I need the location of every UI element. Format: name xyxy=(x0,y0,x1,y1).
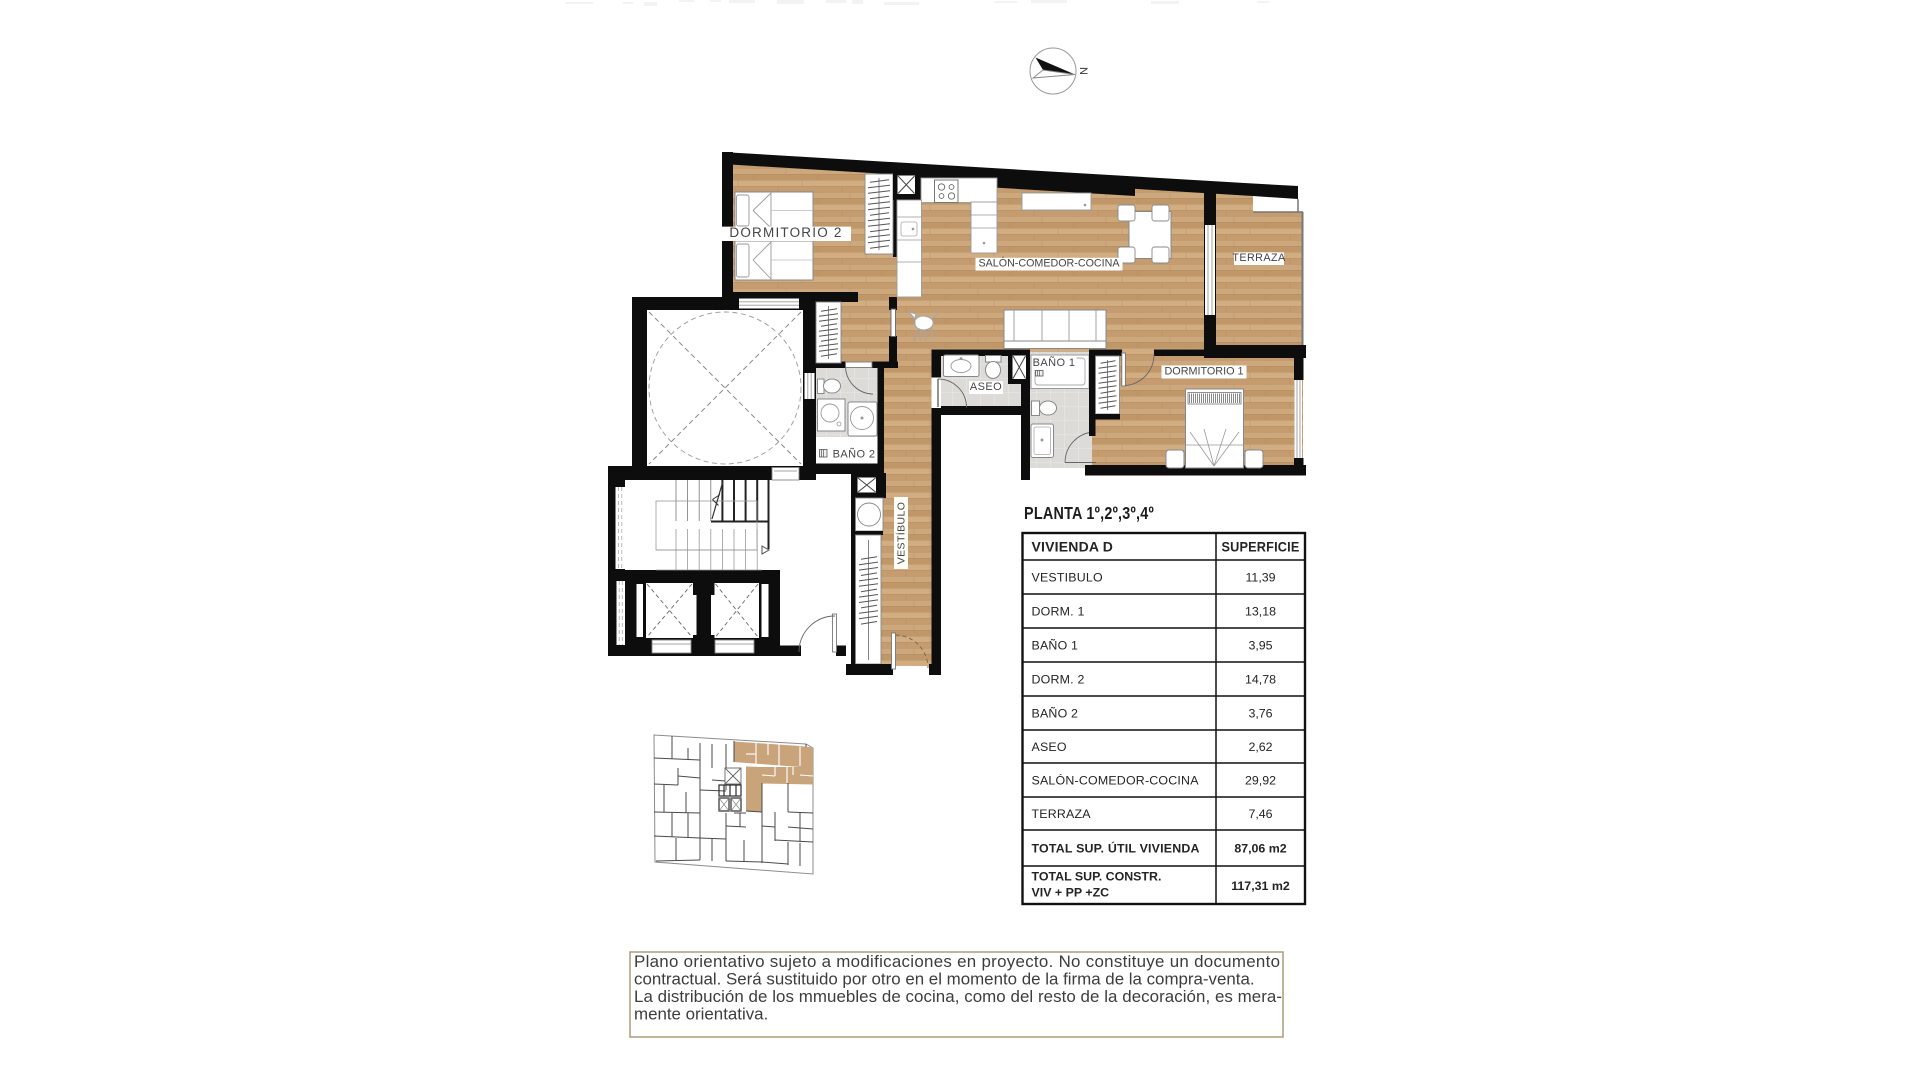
svg-text:3,76: 3,76 xyxy=(1248,707,1272,721)
svg-text:3,95: 3,95 xyxy=(1248,639,1272,653)
svg-text:DORM. 2: DORM. 2 xyxy=(1032,673,1085,687)
svg-text:DORMITORIO 1: DORMITORIO 1 xyxy=(1165,366,1244,378)
svg-text:La distribución de los mmueble: La distribución de los mmuebles de cocin… xyxy=(634,987,1282,1006)
svg-text:TERRAZA: TERRAZA xyxy=(1232,252,1286,264)
svg-text:11,39: 11,39 xyxy=(1245,571,1275,585)
svg-text:BAÑO 2: BAÑO 2 xyxy=(833,448,876,461)
svg-text:VIVIENDA D: VIVIENDA D xyxy=(1032,539,1114,555)
svg-text:TERRAZA: TERRAZA xyxy=(1032,807,1092,821)
svg-text:DORMITORIO 2: DORMITORIO 2 xyxy=(729,225,842,240)
svg-text:BAÑO 1: BAÑO 1 xyxy=(1032,639,1079,653)
svg-text:contractual. Será sustituido p: contractual. Será sustituido por otro en… xyxy=(634,970,1255,989)
svg-text:DORM. 1: DORM. 1 xyxy=(1032,605,1085,619)
svg-text:Plano orientativo sujeto a mod: Plano orientativo sujeto a modificacione… xyxy=(634,952,1280,971)
svg-text:N: N xyxy=(1077,67,1089,75)
svg-text:SALÓN-COMEDOR-COCINA: SALÓN-COMEDOR-COCINA xyxy=(1032,773,1200,788)
svg-text:TOTAL SUP. CONSTR.: TOTAL SUP. CONSTR. xyxy=(1032,870,1162,884)
svg-text:SUPERFICIE: SUPERFICIE xyxy=(1222,539,1300,555)
svg-text:ASEO: ASEO xyxy=(970,381,1002,393)
svg-text:13,18: 13,18 xyxy=(1245,605,1276,619)
svg-text:VIV + PP +ZC: VIV + PP +ZC xyxy=(1032,886,1110,900)
svg-text:BAÑO 2: BAÑO 2 xyxy=(1032,707,1079,721)
svg-text:7,46: 7,46 xyxy=(1248,807,1272,821)
svg-text:14,78: 14,78 xyxy=(1245,673,1276,687)
svg-text:SALÓN-COMEDOR-COCINA: SALÓN-COMEDOR-COCINA xyxy=(979,257,1121,270)
svg-text:mente orientativa.: mente orientativa. xyxy=(634,1005,768,1024)
svg-text:29,92: 29,92 xyxy=(1245,774,1276,788)
svg-text:ASEO: ASEO xyxy=(1032,740,1067,754)
svg-text:BAÑO 1: BAÑO 1 xyxy=(1033,356,1076,369)
svg-text:PLANTA 1º,2º,3º,4º: PLANTA 1º,2º,3º,4º xyxy=(1024,503,1154,523)
svg-text:TOTAL SUP. ÚTIL VIVIENDA: TOTAL SUP. ÚTIL VIVIENDA xyxy=(1032,841,1200,856)
svg-text:117,31 m2: 117,31 m2 xyxy=(1231,879,1290,893)
svg-text:87,06 m2: 87,06 m2 xyxy=(1234,842,1286,856)
svg-text:2,62: 2,62 xyxy=(1248,740,1272,754)
svg-text:VESTIBULO: VESTIBULO xyxy=(1032,571,1104,585)
svg-text:VESTÍBULO: VESTÍBULO xyxy=(895,502,908,565)
